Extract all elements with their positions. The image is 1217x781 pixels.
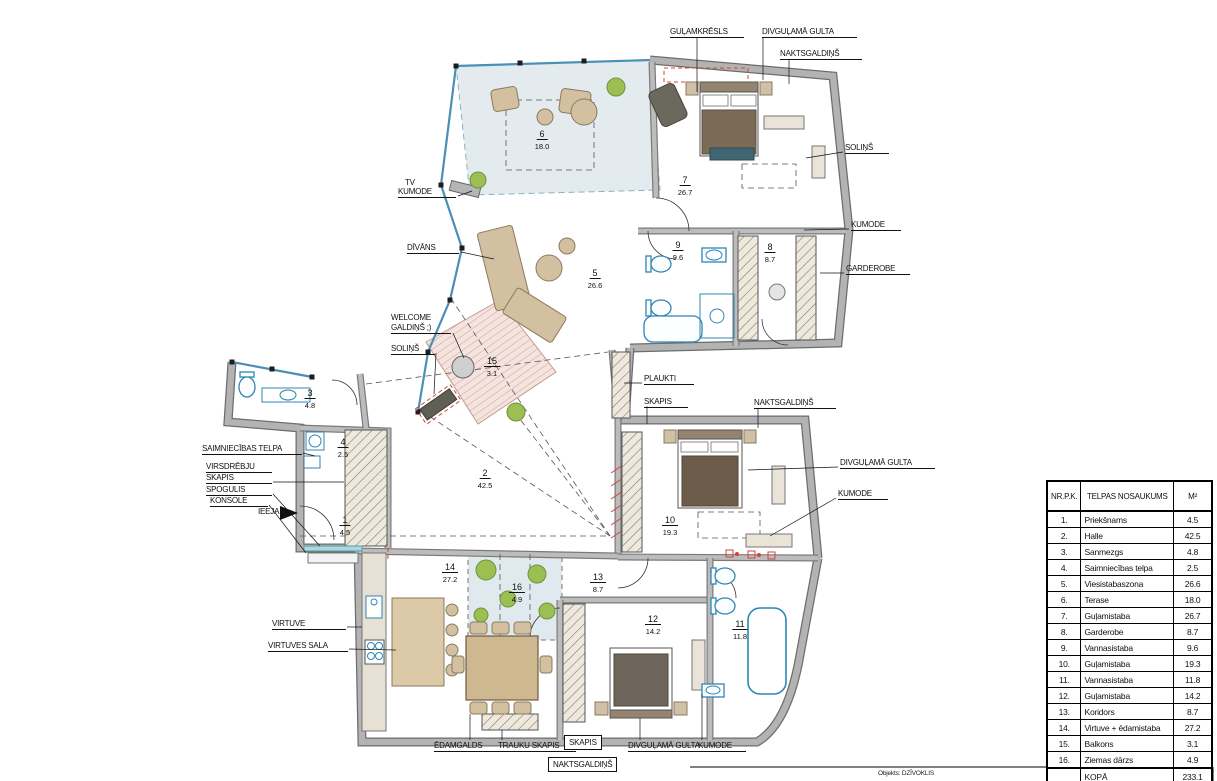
room-name-cell: Halle	[1081, 528, 1174, 544]
room-nr-cell: 12.	[1047, 688, 1081, 704]
kitchen-island	[392, 598, 444, 686]
room-name-cell: Priekšnams	[1081, 511, 1174, 528]
room-area-cell: 26.6	[1174, 576, 1212, 592]
room-name-cell: Vannasistaba	[1081, 640, 1174, 656]
table-header-name: TELPAS NOSAUKUMS	[1081, 481, 1174, 511]
room-area-cell: 9.6	[1174, 640, 1212, 656]
welcome-table	[452, 356, 474, 378]
table-row: 16.Ziemas dārzs4.9	[1047, 752, 1212, 769]
wardrobe	[738, 236, 758, 340]
room-name-cell: Terase	[1081, 592, 1174, 608]
room-area-cell: 19.3	[1174, 656, 1212, 672]
room-area-cell: 42.5	[1174, 528, 1212, 544]
room-name-cell: Guļamistaba	[1081, 608, 1174, 624]
room-nr-cell: 14.	[1047, 720, 1081, 736]
sheet-object-label: Objekts: DZĪVOKLIS	[878, 770, 934, 777]
wardrobe	[796, 236, 816, 340]
room-nr-cell: 8.	[1047, 624, 1081, 640]
room-name-cell: Garderobe	[1081, 624, 1174, 640]
room-area-cell: 8.7	[1174, 624, 1212, 640]
room-name-cell: Ziemas dārzs	[1081, 752, 1174, 769]
table-row: 11.Vannasistaba11.8	[1047, 672, 1212, 688]
room-nr-cell: 3.	[1047, 544, 1081, 560]
room-nr-cell: 11.	[1047, 672, 1081, 688]
table-row: 3.Sanmezgs4.8	[1047, 544, 1212, 560]
table-row: 15.Balkons3.1	[1047, 736, 1212, 752]
room-area-cell: 18.0	[1174, 592, 1212, 608]
total-area: 233.1	[1174, 768, 1212, 781]
table-row: 1.Priekšnams4.5	[1047, 511, 1212, 528]
terrace-floor	[456, 60, 660, 195]
table-row: 14.Virtuve + ēdamistaba27.2	[1047, 720, 1212, 736]
corridor-shelves	[612, 352, 630, 418]
entry-arrow	[280, 506, 298, 520]
console	[308, 553, 358, 563]
room-area-cell: 4.9	[1174, 752, 1212, 769]
room-name-cell: Guļamistaba	[1081, 688, 1174, 704]
table-total-row: KOPĀ 233.1	[1047, 768, 1212, 781]
room-area-cell: 8.7	[1174, 704, 1212, 720]
coat-wardrobe	[345, 430, 387, 546]
room-name-cell: Viesistabaszona	[1081, 576, 1174, 592]
room-nr-cell: 4.	[1047, 560, 1081, 576]
table-header-row: NR.P.K. TELPAS NOSAUKUMS M²	[1047, 481, 1212, 511]
room-nr-cell: 7.	[1047, 608, 1081, 624]
table-row: 4.Saimniecības telpa2.5	[1047, 560, 1212, 576]
room-area-cell: 4.8	[1174, 544, 1212, 560]
table-row: 5.Viesistabaszona26.6	[1047, 576, 1212, 592]
total-nr-cell	[1047, 768, 1081, 781]
room-nr-cell: 6.	[1047, 592, 1081, 608]
table-row: 12.Guļamistaba14.2	[1047, 688, 1212, 704]
room-area-cell: 11.8	[1174, 672, 1212, 688]
dish-cabinet	[482, 714, 538, 730]
room-nr-cell: 2.	[1047, 528, 1081, 544]
room-name-cell: Vannasistaba	[1081, 672, 1174, 688]
room-nr-cell: 9.	[1047, 640, 1081, 656]
room-name-cell: Balkons	[1081, 736, 1174, 752]
table-row: 10.Guļamistaba19.3	[1047, 656, 1212, 672]
wardrobe	[563, 604, 585, 722]
room-area-cell: 14.2	[1174, 688, 1212, 704]
room-nr-cell: 5.	[1047, 576, 1081, 592]
floor-plan-sheet: GUĻAMKRĒSLSDIVGUĻAMĀ GULTANAKTSGALDIŅŠSO…	[0, 0, 1217, 781]
bench	[420, 389, 457, 420]
dining-table	[466, 636, 538, 700]
room-name-cell: Saimniecības telpa	[1081, 560, 1174, 576]
room-area-table: NR.P.K. TELPAS NOSAUKUMS M² 1.Priekšnams…	[1046, 480, 1213, 781]
wardrobe	[622, 432, 642, 552]
table-header-area: M²	[1174, 481, 1212, 511]
room-name-cell: Koridors	[1081, 704, 1174, 720]
table-row: 13.Koridors8.7	[1047, 704, 1212, 720]
table-row: 8.Garderobe8.7	[1047, 624, 1212, 640]
room-nr-cell: 16.	[1047, 752, 1081, 769]
room-area-cell: 27.2	[1174, 720, 1212, 736]
room-area-cell: 3.1	[1174, 736, 1212, 752]
table-header-nr: NR.P.K.	[1047, 481, 1081, 511]
table-row: 2.Halle42.5	[1047, 528, 1212, 544]
table-row: 7.Guļamistaba26.7	[1047, 608, 1212, 624]
room-name-cell: Virtuve + ēdamistaba	[1081, 720, 1174, 736]
room-nr-cell: 10.	[1047, 656, 1081, 672]
room-area-cell: 2.5	[1174, 560, 1212, 576]
room-nr-cell: 1.	[1047, 511, 1081, 528]
mirror	[304, 546, 362, 551]
room-name-cell: Sanmezgs	[1081, 544, 1174, 560]
bathtub	[748, 608, 786, 694]
room-nr-cell: 15.	[1047, 736, 1081, 752]
table-row: 9.Vannasistaba9.6	[1047, 640, 1212, 656]
room-area-cell: 4.5	[1174, 511, 1212, 528]
floor-plan-drawing	[0, 0, 1217, 781]
room-name-cell: Guļamistaba	[1081, 656, 1174, 672]
total-label: KOPĀ	[1081, 768, 1174, 781]
room-nr-cell: 13.	[1047, 704, 1081, 720]
room-area-cell: 26.7	[1174, 608, 1212, 624]
table-row: 6.Terase18.0	[1047, 592, 1212, 608]
